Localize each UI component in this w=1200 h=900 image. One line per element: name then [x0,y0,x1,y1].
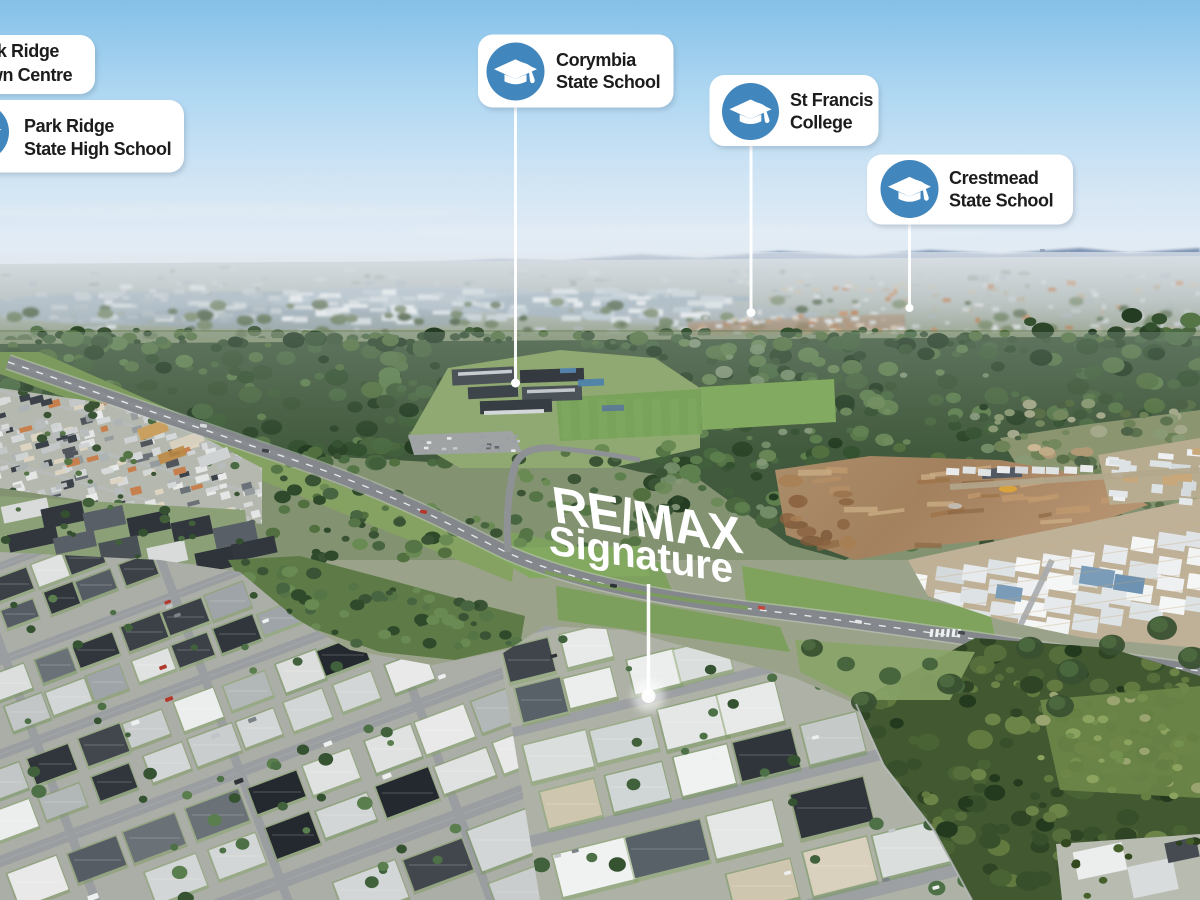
svg-text:Town Centre: Town Centre [0,65,73,85]
svg-text:Corymbia: Corymbia [556,50,637,70]
svg-text:State School: State School [556,72,660,92]
svg-text:College: College [790,113,853,133]
svg-text:St Francis: St Francis [790,90,873,110]
svg-text:Park Ridge: Park Ridge [0,41,59,61]
svg-text:State High School: State High School [24,139,171,159]
svg-text:Park Ridge: Park Ridge [24,116,114,136]
svg-text:Crestmead: Crestmead [949,168,1038,188]
svg-text:State School: State School [949,191,1053,211]
